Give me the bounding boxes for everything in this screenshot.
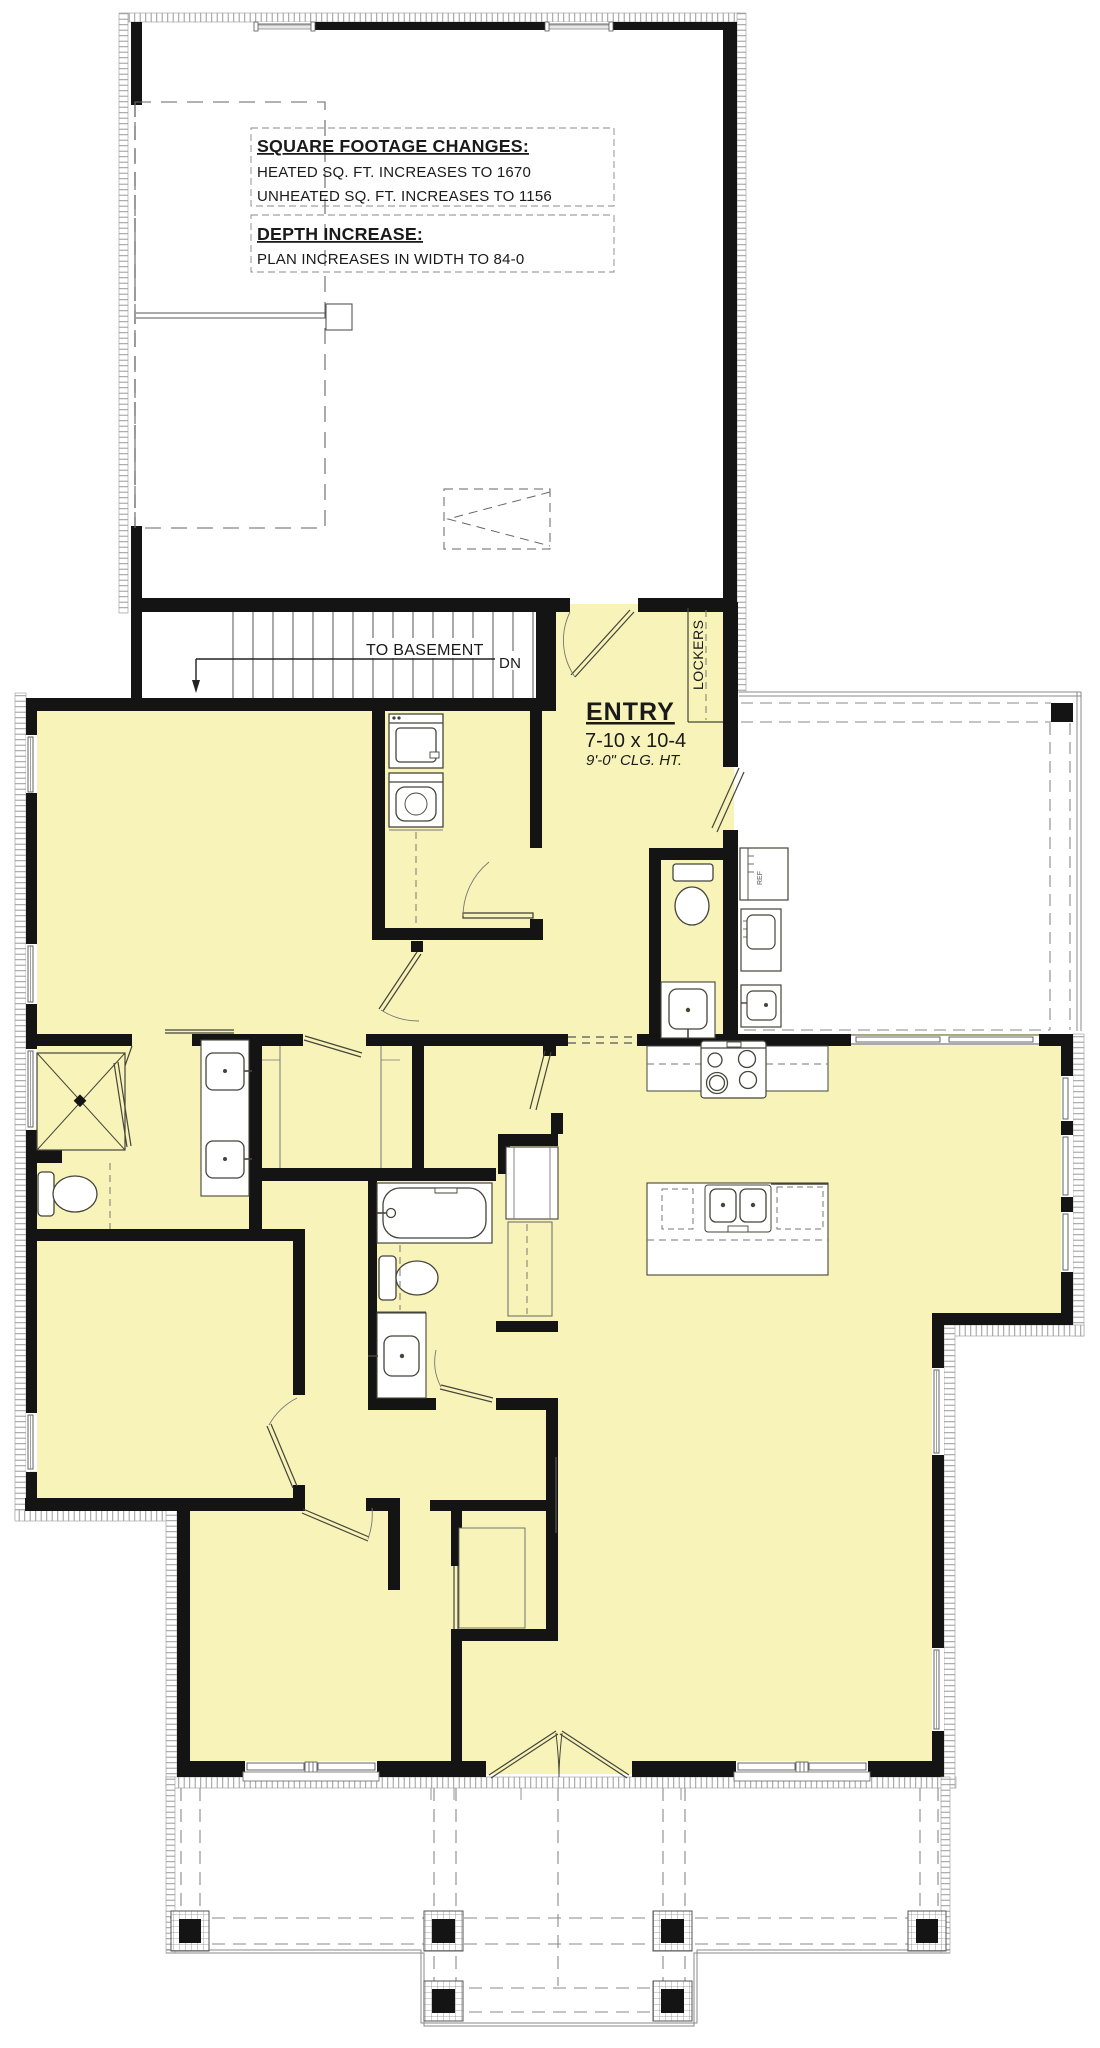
svg-text:REF: REF <box>757 871 764 885</box>
svg-text:HEATED SQ. FT. INCREASES TO 16: HEATED SQ. FT. INCREASES TO 1670 <box>257 164 531 181</box>
svg-text:DN: DN <box>499 655 521 672</box>
svg-text:DEPTH INCREASE:: DEPTH INCREASE: <box>257 224 423 244</box>
svg-text:7-10 x 10-4: 7-10 x 10-4 <box>585 730 686 752</box>
svg-text:TO BASEMENT: TO BASEMENT <box>366 642 484 659</box>
svg-text:UNHEATED SQ. FT. INCREASES TO: UNHEATED SQ. FT. INCREASES TO 1156 <box>257 188 552 205</box>
svg-text:ENTRY: ENTRY <box>586 698 675 726</box>
svg-text:LOCKERS: LOCKERS <box>690 620 706 690</box>
svg-text:SQUARE FOOTAGE CHANGES:: SQUARE FOOTAGE CHANGES: <box>257 136 529 156</box>
svg-text:PLAN INCREASES IN WIDTH TO 84-: PLAN INCREASES IN WIDTH TO 84-0 <box>257 251 524 268</box>
svg-text:9'-0" CLG. HT.: 9'-0" CLG. HT. <box>586 752 682 769</box>
